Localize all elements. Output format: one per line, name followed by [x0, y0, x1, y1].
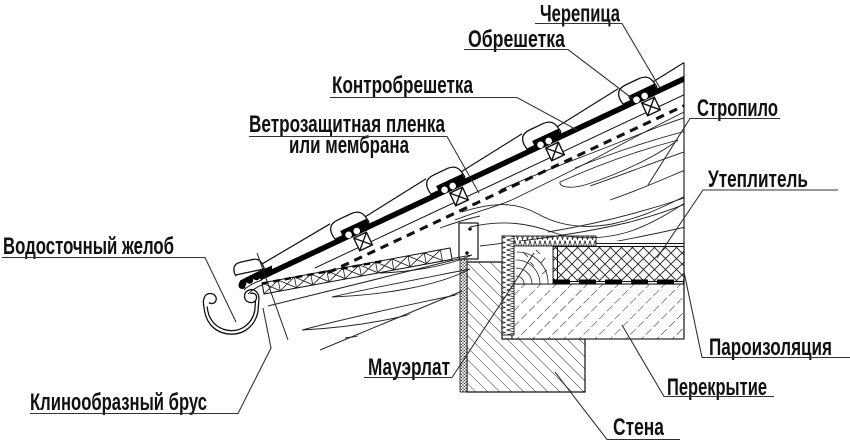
svg-text:Клинообразный брус: Клинообразный брус — [30, 389, 207, 416]
svg-text:Водосточный желоб: Водосточный желоб — [3, 233, 174, 260]
svg-text:Стена: Стена — [613, 414, 664, 441]
svg-text:Контробрешетка: Контробрешетка — [332, 72, 473, 99]
svg-text:Утеплитель: Утеплитель — [708, 166, 808, 193]
